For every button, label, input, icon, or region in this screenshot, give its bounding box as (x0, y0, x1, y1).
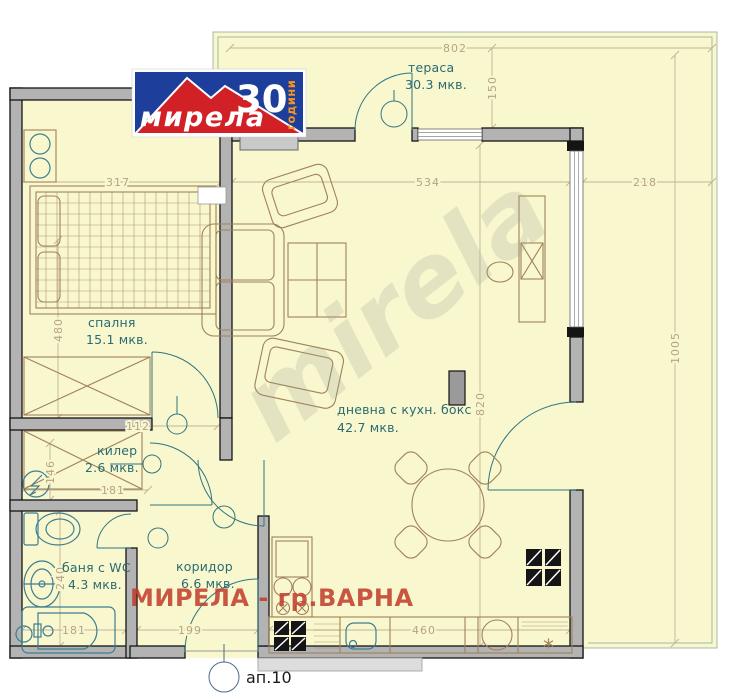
dim-terrace-depth: 150 (486, 76, 499, 100)
callout-circle (209, 662, 239, 692)
label-corridor-name: коридор (176, 559, 233, 574)
label-kiler-area: 2.6 мкв. (85, 460, 139, 475)
dim-terrace-side-length: 1005 (669, 332, 682, 364)
banner-watermark: МИРЕЛА - гр.ВАРНА (130, 584, 414, 612)
dim-bath-width: 181 (62, 624, 86, 637)
dim-top-total: 802 (443, 42, 467, 55)
kitchen-note-asterisk: * (543, 636, 554, 661)
floor-plan-canvas: * (0, 0, 751, 699)
label-bath-name: баня с WC (62, 560, 131, 575)
dim-kiler-height: 146 (44, 460, 57, 484)
label-bedroom-name: спалня (88, 315, 136, 330)
label-bedroom-area: 15.1 мкв. (86, 332, 148, 347)
label-living-area: 42.7 мкв. (337, 420, 399, 435)
dim-bedroom-height: 480 (52, 318, 65, 342)
label-terrace-area: 30.3 мкв. (405, 77, 467, 92)
apartment-number: ап.10 (246, 668, 292, 687)
dim-living-height: 820 (474, 392, 487, 416)
terrace-window-top (418, 129, 482, 140)
column (449, 371, 465, 405)
label-terrace-name: тераса (408, 60, 454, 75)
dim-bedroom-width: 317 (106, 176, 130, 189)
dim-corridor-width: 199 (178, 624, 202, 637)
dim-living-width: 534 (416, 176, 440, 189)
dim-hall-width: 112 (126, 420, 150, 433)
label-bath-area: 4.3 мкв. (68, 577, 122, 592)
shaft-box (198, 187, 226, 204)
dim-kitchen-width: 460 (412, 624, 436, 637)
agency-logo: мирела 30 години (132, 69, 306, 137)
dim-kiler-width: 181 (101, 484, 125, 497)
dim-terrace-side-width: 218 (633, 176, 657, 189)
living-window-right (570, 151, 583, 327)
logo-number-text: 30 (236, 78, 288, 121)
label-kiler-name: килер (97, 443, 137, 458)
logo-suffix-text: години (284, 80, 298, 130)
